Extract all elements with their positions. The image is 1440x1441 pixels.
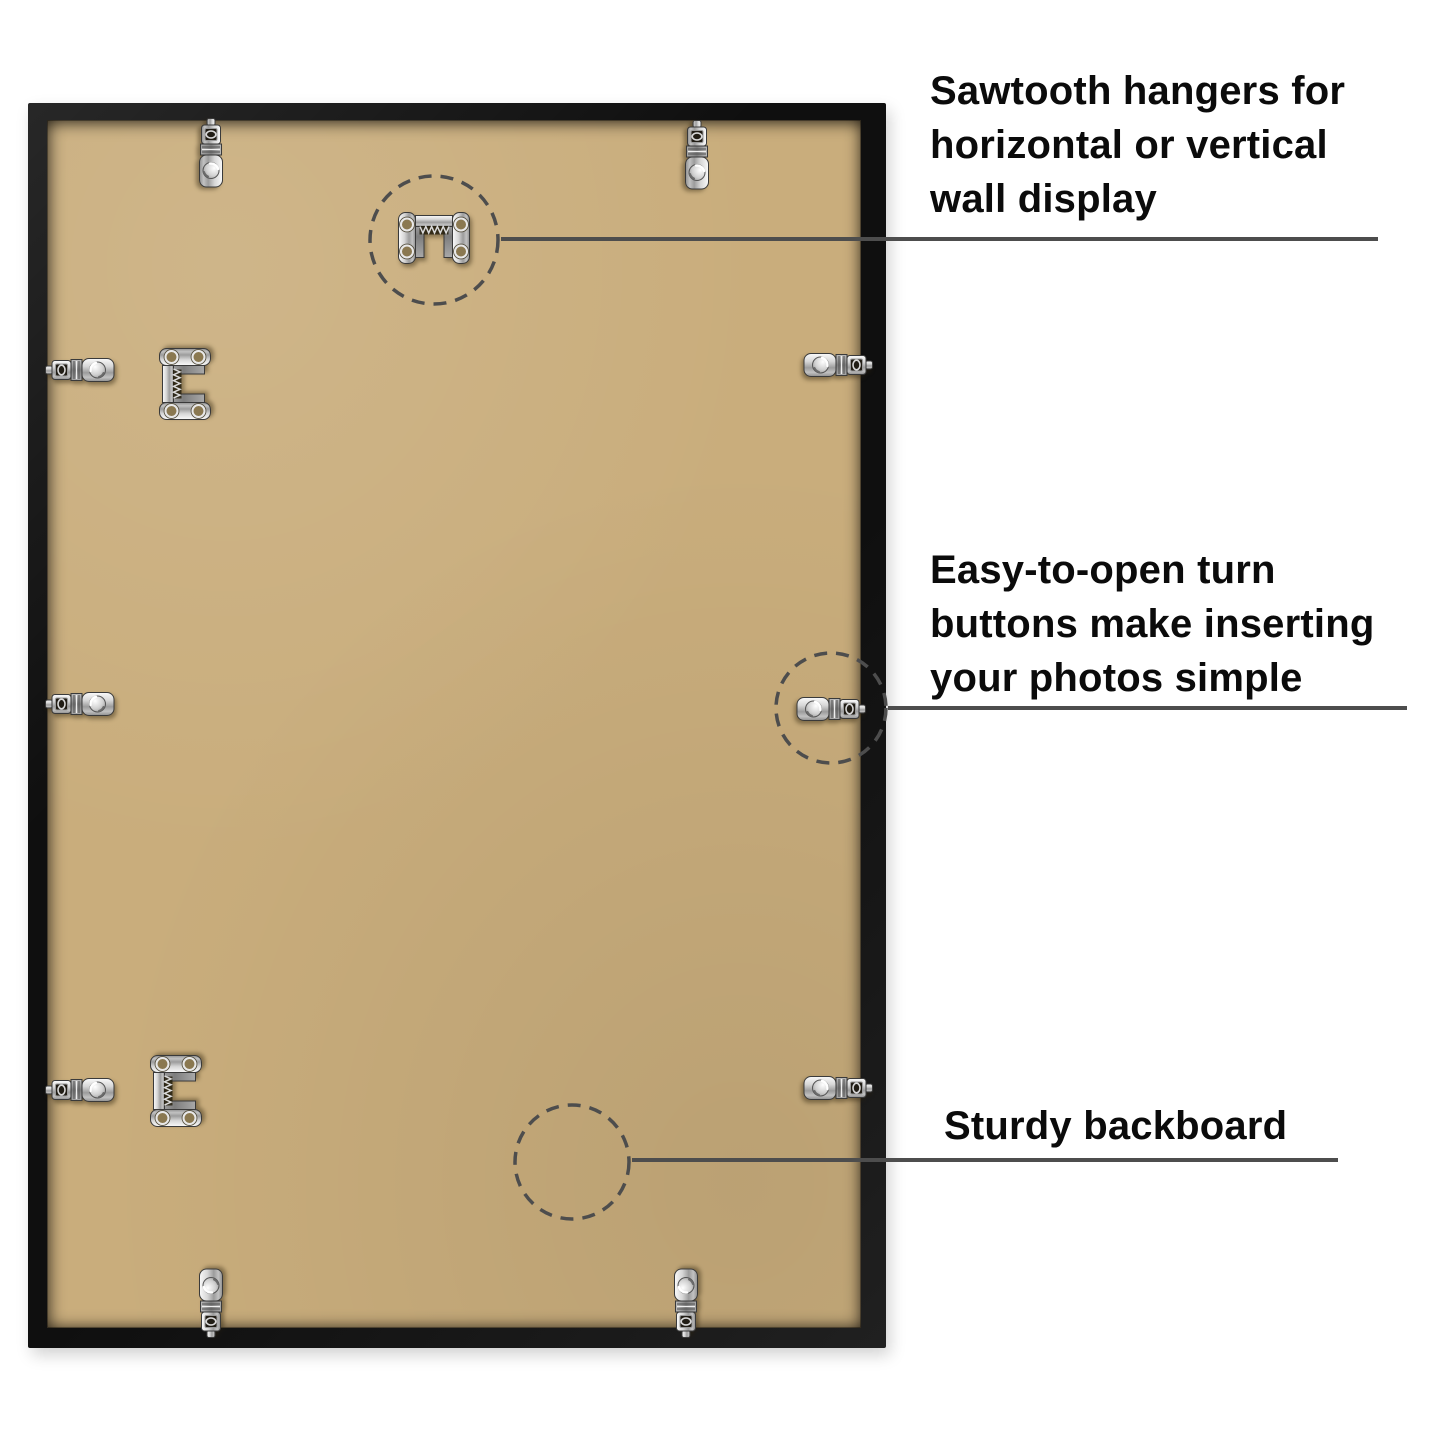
callout-text-line: your photos simple — [930, 651, 1374, 705]
turn-button — [672, 1268, 700, 1338]
callout-text-backboard: Sturdy backboard — [944, 1099, 1287, 1153]
callout-text-line: horizontal or vertical — [930, 118, 1345, 172]
turn-button — [683, 120, 711, 190]
callout-text-line: Easy-to-open turn — [930, 543, 1374, 597]
turn-button — [197, 118, 225, 188]
callout-circle-turn-button — [773, 650, 889, 766]
turn-button — [45, 690, 115, 718]
callout-text-line: Sturdy backboard — [944, 1099, 1287, 1153]
product-infographic: Sawtooth hangers for horizontal or verti… — [0, 0, 1440, 1441]
callout-circle-backboard — [512, 1102, 632, 1222]
callout-line-sawtooth — [501, 237, 1378, 241]
turn-button — [803, 351, 873, 379]
turn-button — [45, 1076, 115, 1104]
callout-text-line: buttons make inserting — [930, 597, 1374, 651]
sawtooth-hanger — [147, 1053, 205, 1129]
callout-circle-sawtooth — [367, 173, 501, 307]
callout-text-turn-button: Easy-to-open turn buttons make inserting… — [930, 543, 1374, 705]
callout-text-line: wall display — [930, 172, 1345, 226]
callout-text-sawtooth: Sawtooth hangers for horizontal or verti… — [930, 64, 1345, 226]
turn-button — [803, 1074, 873, 1102]
callout-text-line: Sawtooth hangers for — [930, 64, 1345, 118]
callout-line-backboard — [632, 1158, 1338, 1162]
callout-line-turn-button — [888, 706, 1407, 710]
sawtooth-hanger — [156, 346, 214, 422]
turn-button — [197, 1268, 225, 1338]
turn-button — [45, 356, 115, 384]
